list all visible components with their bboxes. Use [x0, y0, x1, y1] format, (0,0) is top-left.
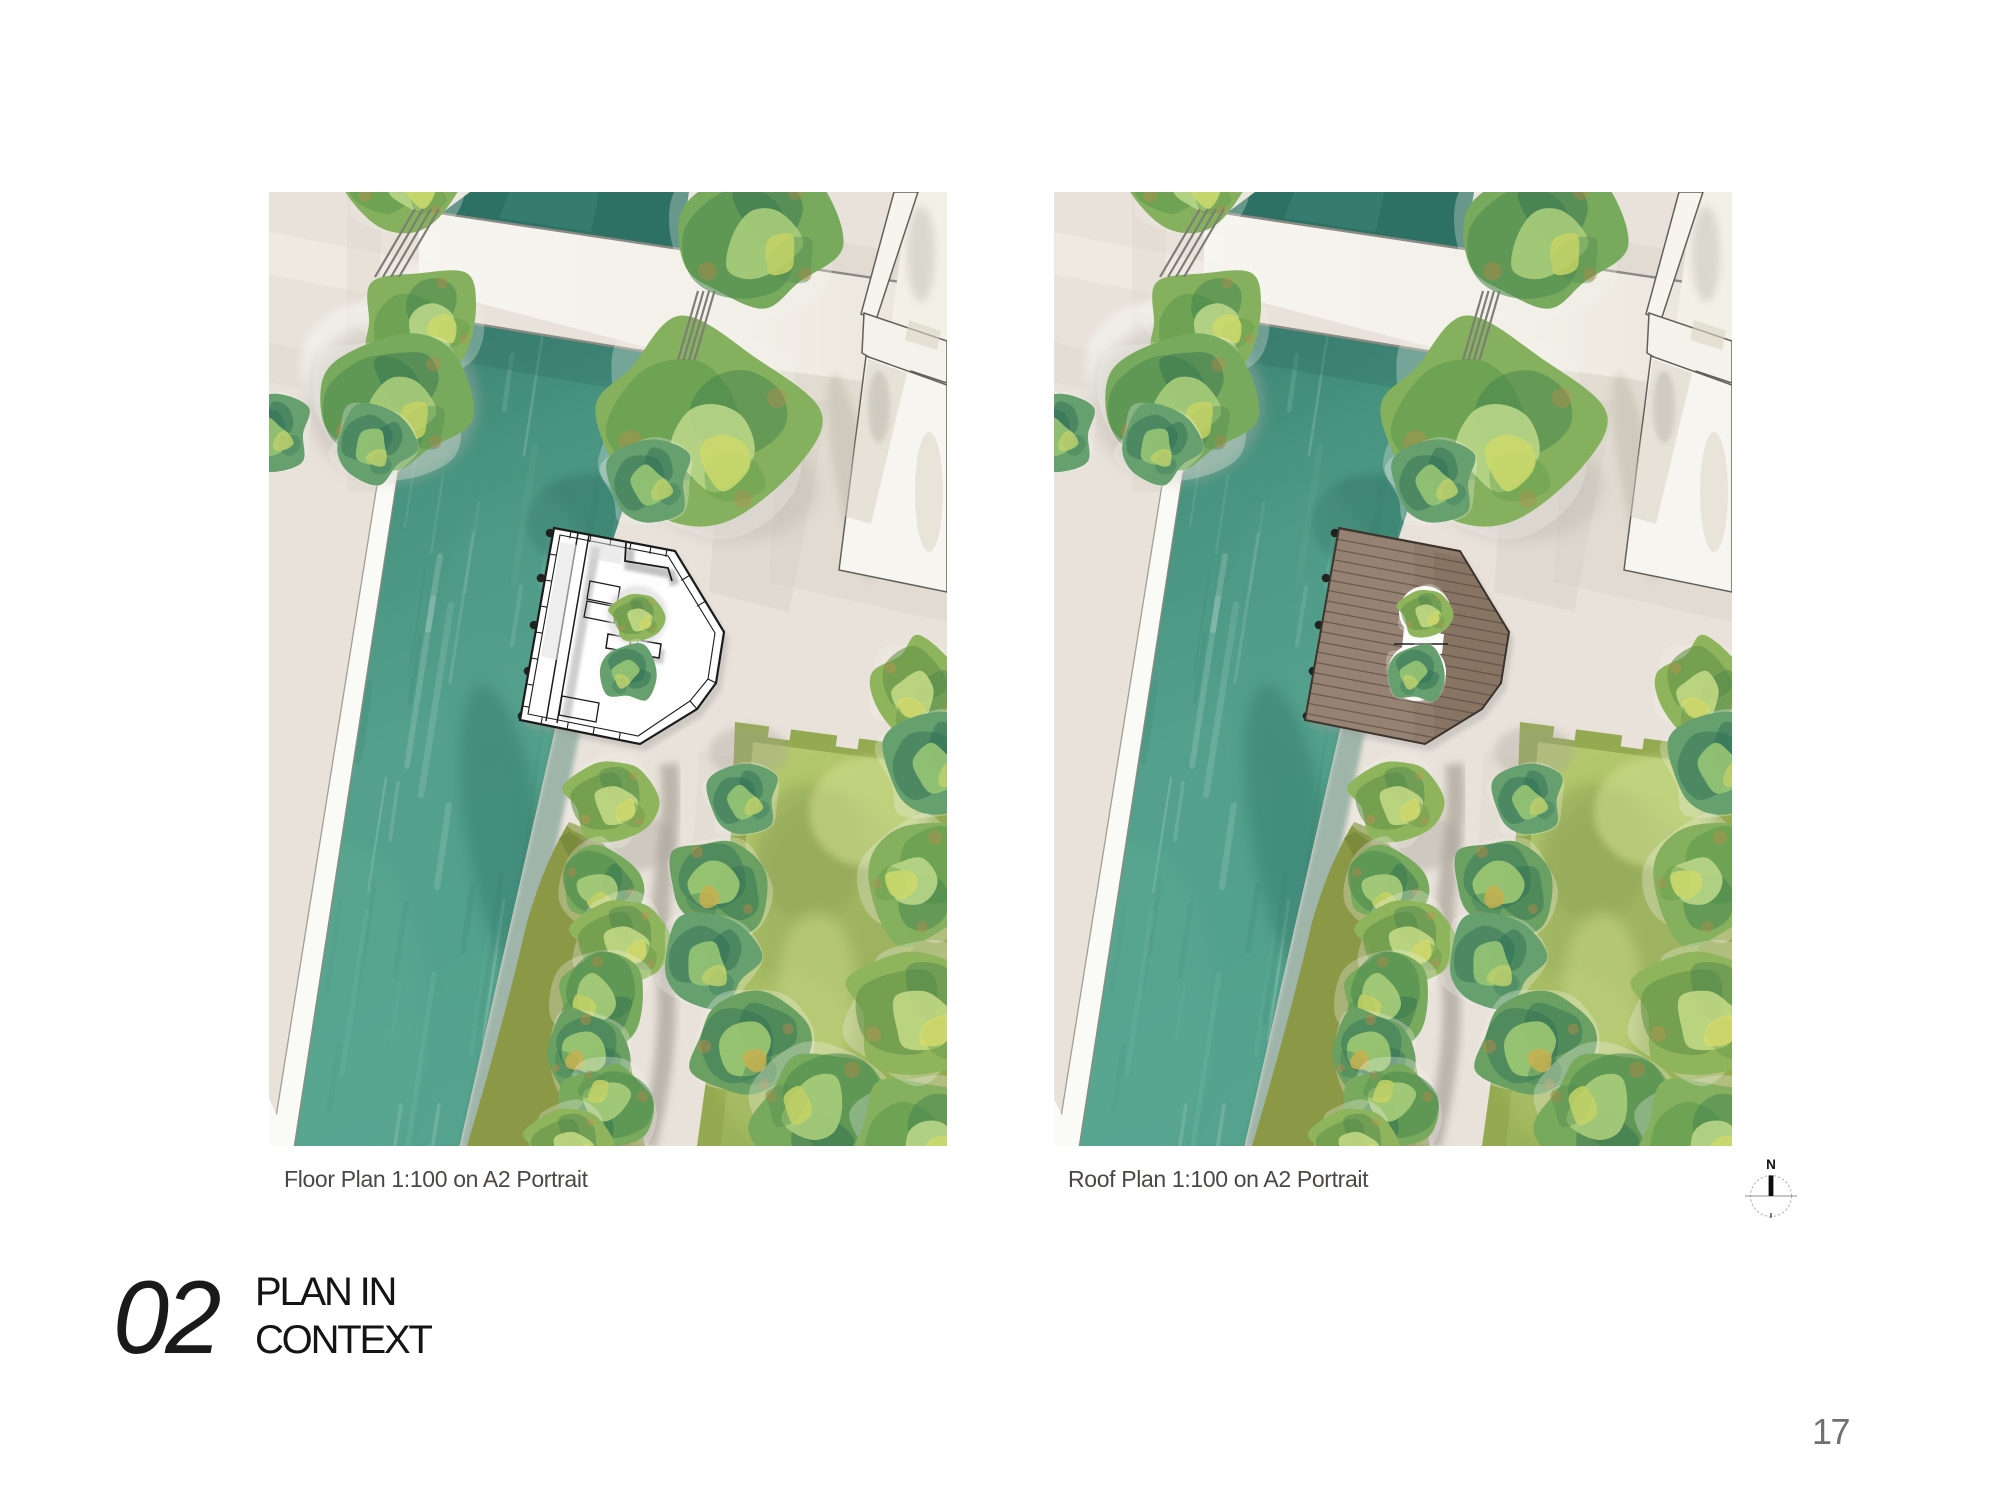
svg-text:N: N — [1766, 1157, 1776, 1172]
